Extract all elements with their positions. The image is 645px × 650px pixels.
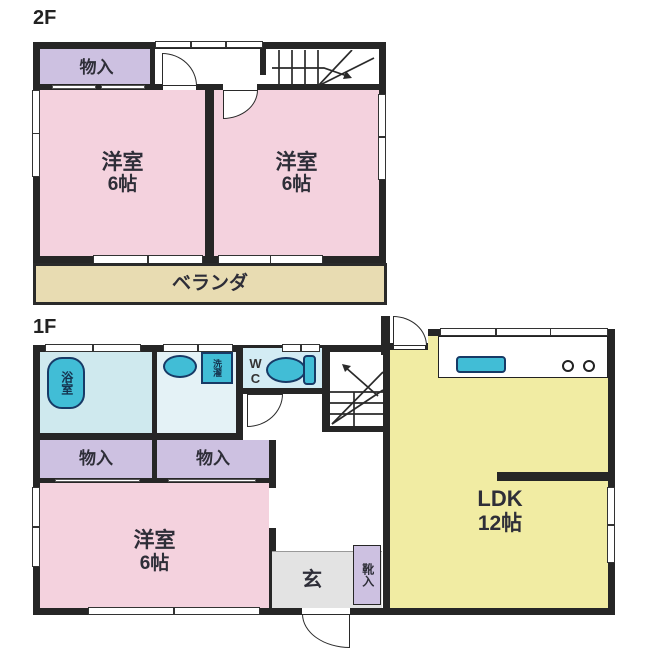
entrance-label: 玄 bbox=[302, 569, 322, 591]
kitchen-sink-icon bbox=[456, 356, 506, 373]
stove-burner-icon bbox=[583, 360, 595, 372]
window bbox=[155, 41, 263, 48]
bathtub-icon: 浴室 bbox=[47, 357, 85, 409]
floor-plan: 2F 物入 洋室 6帖 洋室 6帖 ベランダ 1F bbox=[0, 0, 645, 650]
ldk-name: LDK bbox=[430, 487, 570, 512]
veranda: ベランダ bbox=[33, 263, 387, 305]
window bbox=[607, 487, 615, 563]
wall bbox=[322, 426, 390, 432]
sliding-door-mark bbox=[168, 479, 256, 482]
room-1f: 洋室 6帖 bbox=[40, 483, 269, 608]
ldk-label: LDK 12帖 bbox=[430, 487, 570, 535]
window bbox=[32, 487, 40, 567]
toilet-icon bbox=[266, 357, 306, 383]
veranda-label: ベランダ bbox=[172, 273, 248, 294]
toilet-tank-icon bbox=[303, 355, 316, 385]
room-2f-left: 洋室 6帖 bbox=[40, 90, 205, 256]
washbasin-icon bbox=[163, 355, 197, 378]
room-1f-size: 6帖 bbox=[140, 553, 170, 574]
washing-machine-icon: 洗濯 bbox=[201, 352, 233, 384]
window bbox=[163, 344, 233, 352]
closet-1f-left-label: 物入 bbox=[79, 449, 113, 468]
room-1f-name: 洋室 bbox=[134, 529, 176, 553]
wall bbox=[205, 90, 214, 256]
stairs-2f-icon bbox=[266, 50, 378, 86]
room-2f-left-name: 洋室 bbox=[102, 151, 144, 175]
stairs-1f-icon bbox=[330, 350, 383, 426]
shoe-cabinet-1f: 靴入 bbox=[353, 545, 381, 605]
entry-door-arc bbox=[302, 614, 350, 648]
wall bbox=[236, 345, 243, 440]
window bbox=[45, 344, 141, 352]
wc-label: WC bbox=[246, 352, 262, 390]
floor1-label: 1F bbox=[33, 316, 56, 339]
wall bbox=[150, 49, 155, 86]
room-2f-left-size: 6帖 bbox=[108, 174, 138, 195]
door-arc bbox=[393, 316, 427, 346]
stove-burner-icon bbox=[562, 360, 574, 372]
closet-1f-right-label: 物入 bbox=[196, 449, 230, 468]
wall bbox=[40, 433, 243, 440]
window bbox=[378, 94, 386, 180]
closet-1f-right: 物入 bbox=[157, 440, 269, 478]
ldk-size: 12帖 bbox=[430, 512, 570, 536]
sliding-door-mark bbox=[101, 85, 145, 89]
laundry-label: 洗濯 bbox=[212, 359, 222, 377]
ldk-divider-wall bbox=[497, 472, 615, 481]
sliding-door-mark bbox=[55, 479, 140, 482]
closet-2f: 物入 bbox=[40, 49, 153, 86]
window bbox=[282, 344, 320, 352]
sliding-door-mark bbox=[52, 85, 96, 89]
window bbox=[32, 90, 40, 177]
room-2f-right-name: 洋室 bbox=[276, 151, 318, 175]
room-2f-right-size: 6帖 bbox=[282, 174, 312, 195]
wall bbox=[322, 345, 330, 432]
closet-1f-left: 物入 bbox=[40, 440, 152, 478]
shoe-label: 靴入 bbox=[360, 563, 373, 587]
closet-2f-label: 物入 bbox=[80, 58, 114, 77]
window bbox=[88, 607, 260, 615]
floor2-label: 2F bbox=[33, 7, 56, 30]
bath-label: 浴室 bbox=[59, 371, 72, 395]
door-opening bbox=[269, 488, 276, 528]
window bbox=[440, 328, 608, 336]
